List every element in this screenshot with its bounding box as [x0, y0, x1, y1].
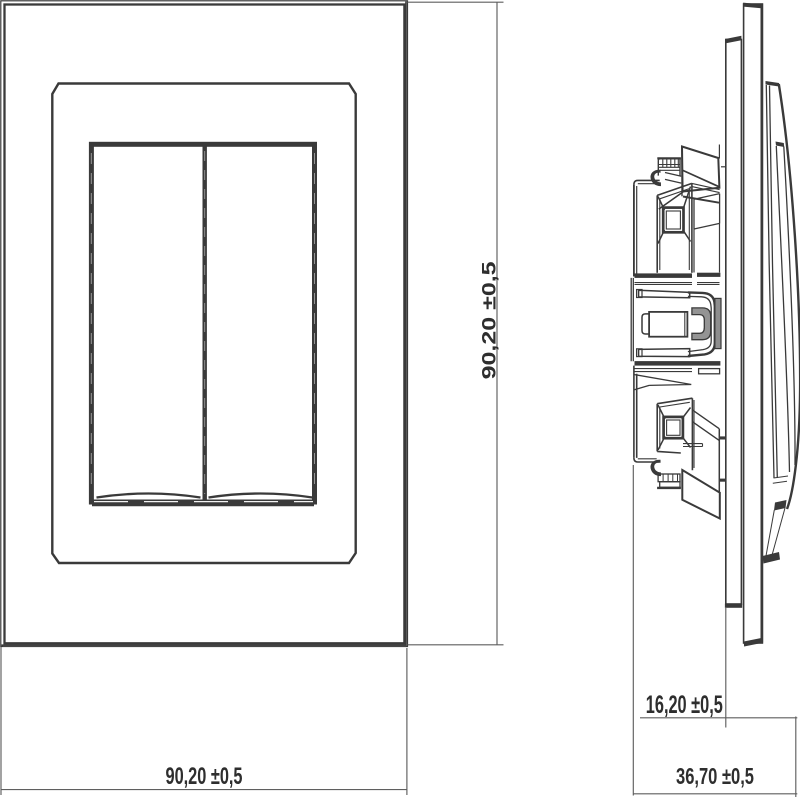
svg-text:36,70 ±0,5: 36,70 ±0,5 — [676, 763, 754, 789]
svg-text:16,20 ±0,5: 16,20 ±0,5 — [646, 691, 723, 719]
svg-text:90,20 ±0,5: 90,20 ±0,5 — [479, 261, 500, 380]
svg-text:90,20 ±0,5: 90,20 ±0,5 — [166, 763, 243, 790]
